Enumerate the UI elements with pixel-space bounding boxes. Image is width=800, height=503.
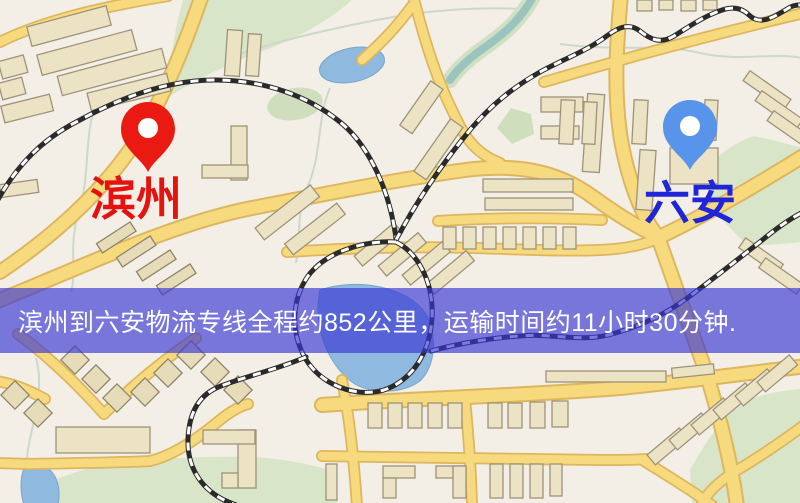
route-info-text: 滨州到六安物流专线全程约852公里，运输时间约11小时30分钟. [0,303,736,339]
map-canvas [0,0,800,503]
origin-city-label: 滨州 [90,177,182,223]
origin-pin-icon [121,102,175,172]
route-info-banner: 滨州到六安物流专线全程约852公里，运输时间约11小时30分钟. [0,288,800,353]
destination-city-label: 六安 [644,181,736,227]
map-screenshot: 滨州 六安 滨州到六安物流专线全程约852公里，运输时间约11小时30分钟. [0,0,800,503]
destination-pin-icon [663,100,717,170]
